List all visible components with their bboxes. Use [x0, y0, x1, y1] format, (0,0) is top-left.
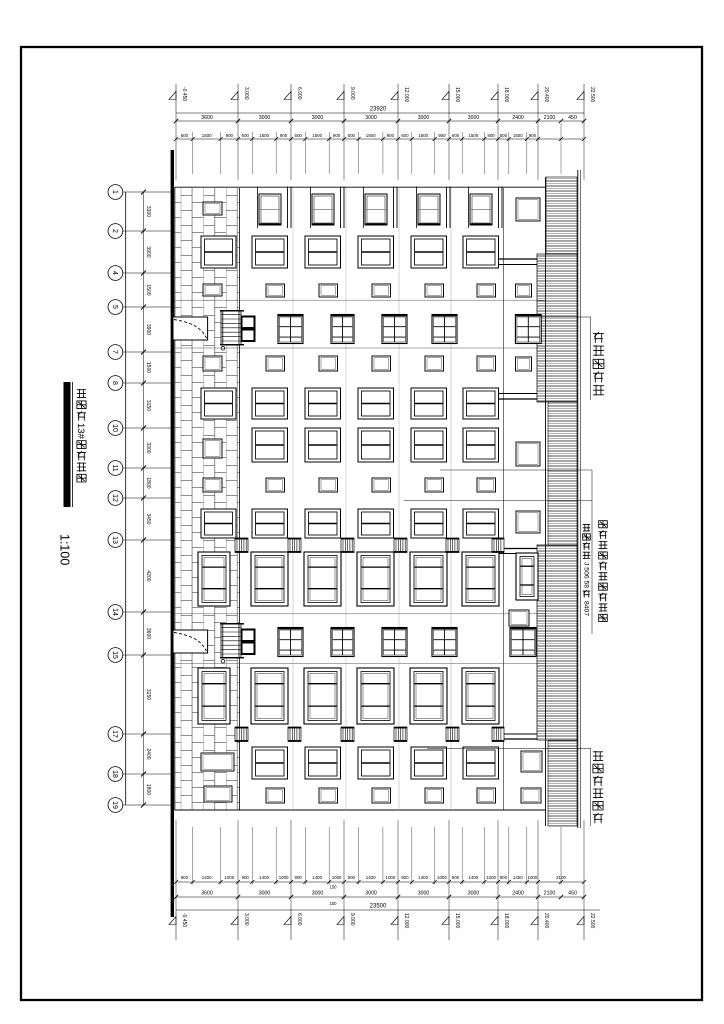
svg-text:2400: 2400 [512, 891, 524, 897]
svg-text:3300: 3300 [145, 206, 151, 217]
svg-text:4200: 4200 [145, 570, 151, 581]
svg-text:20.400: 20.400 [543, 87, 549, 103]
svg-text:1400: 1400 [468, 875, 478, 880]
svg-text:6.000: 6.000 [296, 913, 302, 926]
svg-text:3900: 3900 [145, 246, 151, 257]
svg-text:1500: 1500 [312, 133, 322, 138]
svg-text:3.000: 3.000 [243, 913, 249, 926]
svg-text:1500: 1500 [145, 362, 151, 373]
svg-text:9.000: 9.000 [349, 87, 355, 100]
svg-text:15.000: 15.000 [454, 87, 460, 103]
svg-text:7: 7 [111, 350, 118, 354]
svg-text:23920: 23920 [370, 107, 387, 113]
svg-text:900: 900 [348, 875, 356, 880]
svg-text:3300: 3300 [145, 442, 151, 453]
svg-text:3450: 3450 [145, 513, 151, 524]
svg-text:1400: 1400 [366, 875, 376, 880]
svg-text:3000: 3000 [468, 115, 480, 121]
svg-text:12: 12 [111, 494, 118, 502]
svg-text:900: 900 [295, 875, 303, 880]
svg-text:1800: 1800 [145, 784, 151, 795]
svg-text:900: 900 [487, 133, 495, 138]
svg-text:1500: 1500 [145, 284, 151, 295]
svg-text:900: 900 [452, 875, 460, 880]
svg-text:10: 10 [111, 424, 118, 432]
svg-text:3000: 3000 [259, 891, 271, 897]
svg-text:3900: 3900 [145, 324, 151, 335]
svg-text:1000: 1000 [224, 875, 234, 880]
svg-text:600: 600 [295, 133, 303, 138]
svg-text:1400: 1400 [418, 875, 428, 880]
svg-text:1000: 1000 [486, 875, 496, 880]
svg-text:2100: 2100 [556, 875, 566, 880]
svg-text:900: 900 [181, 875, 189, 880]
svg-text:3000: 3000 [365, 891, 377, 897]
svg-text:900: 900 [401, 875, 409, 880]
svg-text:1000: 1000 [386, 875, 396, 880]
svg-text:900: 900 [333, 133, 341, 138]
svg-text:150: 150 [330, 885, 338, 890]
svg-text:3150: 3150 [145, 689, 151, 700]
svg-text:3000: 3000 [468, 891, 480, 897]
svg-text:900: 900 [242, 875, 250, 880]
svg-text:3600: 3600 [201, 891, 213, 897]
svg-text:1000: 1000 [528, 875, 538, 880]
svg-text:1500: 1500 [468, 133, 478, 138]
svg-text:600: 600 [181, 133, 189, 138]
svg-text:3000: 3000 [259, 115, 271, 121]
svg-text:2100: 2100 [544, 891, 556, 897]
svg-text:3000: 3000 [312, 891, 324, 897]
svg-text:J 506 58: J 506 58 [583, 562, 590, 588]
svg-text:3000: 3000 [418, 115, 430, 121]
svg-text:13: 13 [111, 536, 118, 544]
svg-text:3600: 3600 [145, 628, 151, 639]
svg-text:150: 150 [330, 901, 338, 906]
svg-text:1000: 1000 [279, 875, 289, 880]
svg-text:1500: 1500 [366, 133, 376, 138]
svg-text:1500: 1500 [418, 133, 428, 138]
svg-text:2400: 2400 [145, 748, 151, 759]
svg-text:2400: 2400 [512, 115, 524, 121]
svg-text:15: 15 [111, 651, 118, 659]
svg-text:8: 8 [111, 381, 118, 385]
svg-text:19: 19 [111, 801, 118, 809]
svg-text:900: 900 [226, 133, 234, 138]
svg-text:20.400: 20.400 [543, 913, 549, 929]
svg-text:12.000: 12.000 [403, 913, 409, 929]
svg-text:1500: 1500 [513, 133, 523, 138]
svg-text:600: 600 [348, 133, 356, 138]
svg-text:13#: 13# [75, 423, 86, 440]
svg-text:3150: 3150 [145, 400, 151, 411]
svg-text:1000: 1000 [332, 875, 342, 880]
svg-text:22.500: 22.500 [589, 87, 595, 103]
svg-text:900: 900 [280, 133, 288, 138]
svg-text:4: 4 [111, 271, 118, 275]
svg-text:17: 17 [111, 730, 118, 738]
svg-text:1800: 1800 [145, 477, 151, 488]
svg-text:900: 900 [529, 133, 537, 138]
svg-text:11: 11 [111, 464, 118, 471]
svg-text:12.000: 12.000 [403, 87, 409, 103]
svg-text:3000: 3000 [418, 891, 430, 897]
svg-text:600: 600 [452, 133, 460, 138]
svg-text:450: 450 [568, 115, 577, 121]
svg-text:900: 900 [438, 133, 446, 138]
svg-text:5: 5 [111, 305, 118, 309]
svg-text:6.000: 6.000 [296, 87, 302, 100]
svg-text:3000: 3000 [365, 115, 377, 121]
svg-text:1400: 1400 [259, 875, 269, 880]
svg-text:600: 600 [401, 133, 409, 138]
svg-text:9.000: 9.000 [349, 913, 355, 926]
svg-text:15.000: 15.000 [454, 913, 460, 929]
svg-text:600: 600 [242, 133, 250, 138]
svg-text:1400: 1400 [312, 875, 322, 880]
svg-text:900: 900 [387, 133, 395, 138]
svg-text:1000: 1000 [437, 875, 447, 880]
svg-text:22.500: 22.500 [589, 913, 595, 929]
svg-text:18.000: 18.000 [503, 87, 509, 103]
svg-text:1400: 1400 [513, 875, 523, 880]
svg-text:18: 18 [111, 770, 118, 778]
svg-text:-0.450: -0.450 [181, 913, 187, 927]
svg-text:1:100: 1:100 [58, 534, 72, 565]
svg-text:3000: 3000 [312, 115, 324, 121]
svg-text:450: 450 [568, 891, 577, 897]
svg-text:18.000: 18.000 [503, 913, 509, 929]
svg-text:2: 2 [111, 229, 118, 233]
svg-text:3.000: 3.000 [243, 87, 249, 100]
svg-text:3600: 3600 [201, 115, 213, 121]
svg-text:900: 900 [500, 875, 508, 880]
svg-text:600: 600 [500, 133, 508, 138]
svg-text:2100: 2100 [544, 115, 556, 121]
svg-text:23500: 23500 [370, 904, 387, 910]
svg-text:1500: 1500 [259, 133, 269, 138]
svg-text:8407: 8407 [583, 601, 590, 616]
svg-text:14: 14 [111, 608, 118, 616]
svg-text:-0.450: -0.450 [181, 87, 187, 101]
svg-text:1400: 1400 [202, 875, 212, 880]
svg-text:1: 1 [111, 190, 118, 194]
svg-text:1500: 1500 [202, 133, 212, 138]
